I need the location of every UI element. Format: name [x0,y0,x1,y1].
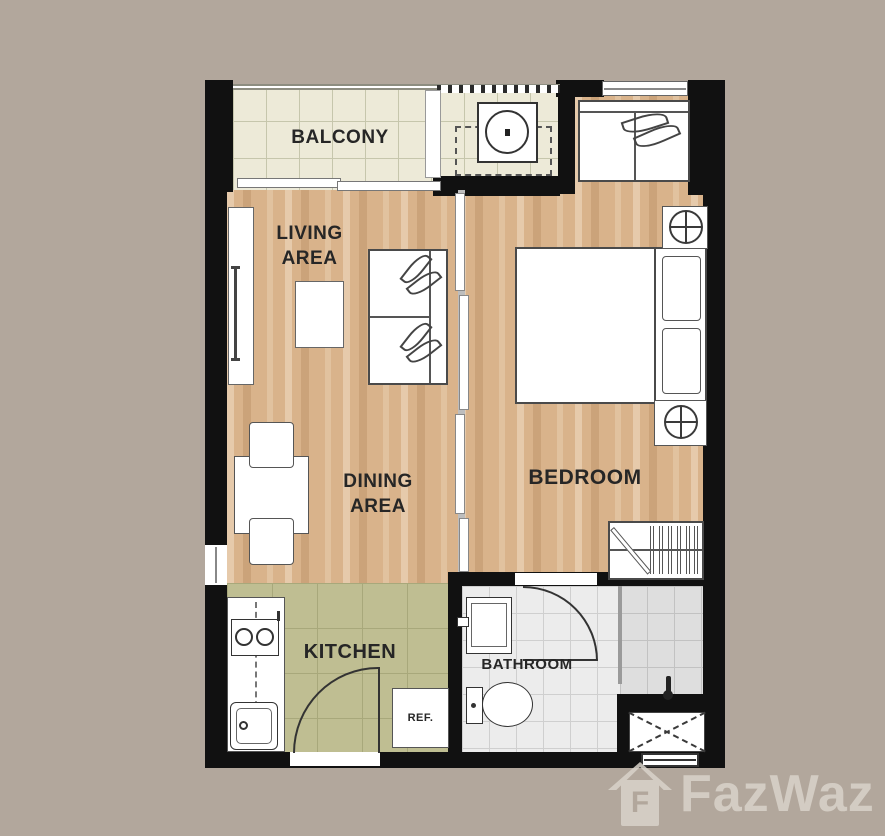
sliding-door-panel-left [237,178,341,188]
living-area-label: LIVING AREA [252,222,367,271]
bathroom-label: BATHROOM [462,655,592,675]
tv-icon [234,268,237,360]
balcony-railing-balusters [437,84,560,93]
living-area-label-line2: AREA [282,248,338,269]
sliding-partition-panel-4 [459,518,469,572]
wardrobe-hanger-6 [694,526,698,574]
tv-end-cap-bottom [231,358,240,361]
bed-mattress-icon [515,247,656,404]
bed-pillow-2-icon [662,328,701,394]
wall-right-top-pillar [688,80,725,195]
watermark: F FazWaz [608,760,875,828]
sliding-partition-panel-2 [459,295,469,410]
washing-machine-hub [505,129,510,136]
kitchen-label: KITCHEN [295,639,405,665]
kitchen-door-leaf [378,667,380,753]
wall-left-lower [205,585,227,768]
window-left-glass-line [215,547,217,583]
shower-mixer-knob [663,690,673,700]
wall-ac-niche-left [617,712,629,752]
sliding-door-panel-right [337,181,441,191]
stove-burner-1 [235,628,253,646]
dining-area-label-line2: AREA [350,496,406,517]
brand-house-door-icon: F [621,780,659,826]
kitchen-doorway [290,752,380,766]
wardrobe-hanger-2 [659,526,663,574]
bathroom-doorway [515,573,597,585]
wall-kitchen-right [448,583,462,752]
bed-pillow-1-icon [662,256,701,321]
bathroom-sink-tap [457,617,469,627]
bedside-lamp-bottom-icon [664,405,698,439]
balcony-divider-strip [425,90,441,178]
wardrobe-hanger-1 [650,526,654,574]
bedroom-label: BEDROOM [495,464,675,491]
toilet-flush-dot [471,703,476,708]
brand-house-icon: F [608,760,672,828]
refrigerator-label: REF. [408,711,434,725]
brand-wordmark: FazWaz [680,764,875,824]
stove-handle [277,611,280,621]
shower-floor [620,586,708,696]
dining-area-label: DINING AREA [328,470,428,519]
window-bedroom-glass-line [604,88,686,90]
stove-burner-2 [256,628,274,646]
wardrobe-hanger-5 [686,526,690,574]
sofa-seat-divider [370,316,429,318]
wall-balcony-nook-divider [558,84,575,194]
bathroom-sink-basin [471,603,507,647]
balcony-label: BALCONY [270,126,410,151]
kitchen-sink-drain [239,721,248,730]
wall-balcony-left-pillar [205,80,233,192]
tv-end-cap-top [231,266,240,269]
dining-area-label-line1: DINING [343,471,413,492]
balcony-railing [233,84,437,90]
wardrobe-hanger-4 [677,526,681,574]
floor-plan: REF. BALCONY LIVING AREA DINING AREA BED… [0,0,885,836]
shower-glass-partition [618,586,622,684]
toilet-bowl-icon [482,682,533,727]
wall-under-washer [433,176,560,196]
wardrobe-hanger-3 [668,526,672,574]
dining-chair-bottom-icon [249,518,294,565]
dining-chair-top-icon [249,422,294,468]
refrigerator-icon: REF. [392,688,449,748]
bedside-lamp-top-icon [669,210,703,244]
sliding-partition-panel-1 [455,193,465,291]
living-area-label-line1: LIVING [276,223,342,244]
coffee-table-icon [295,281,344,348]
sliding-partition-panel-3 [455,414,465,514]
